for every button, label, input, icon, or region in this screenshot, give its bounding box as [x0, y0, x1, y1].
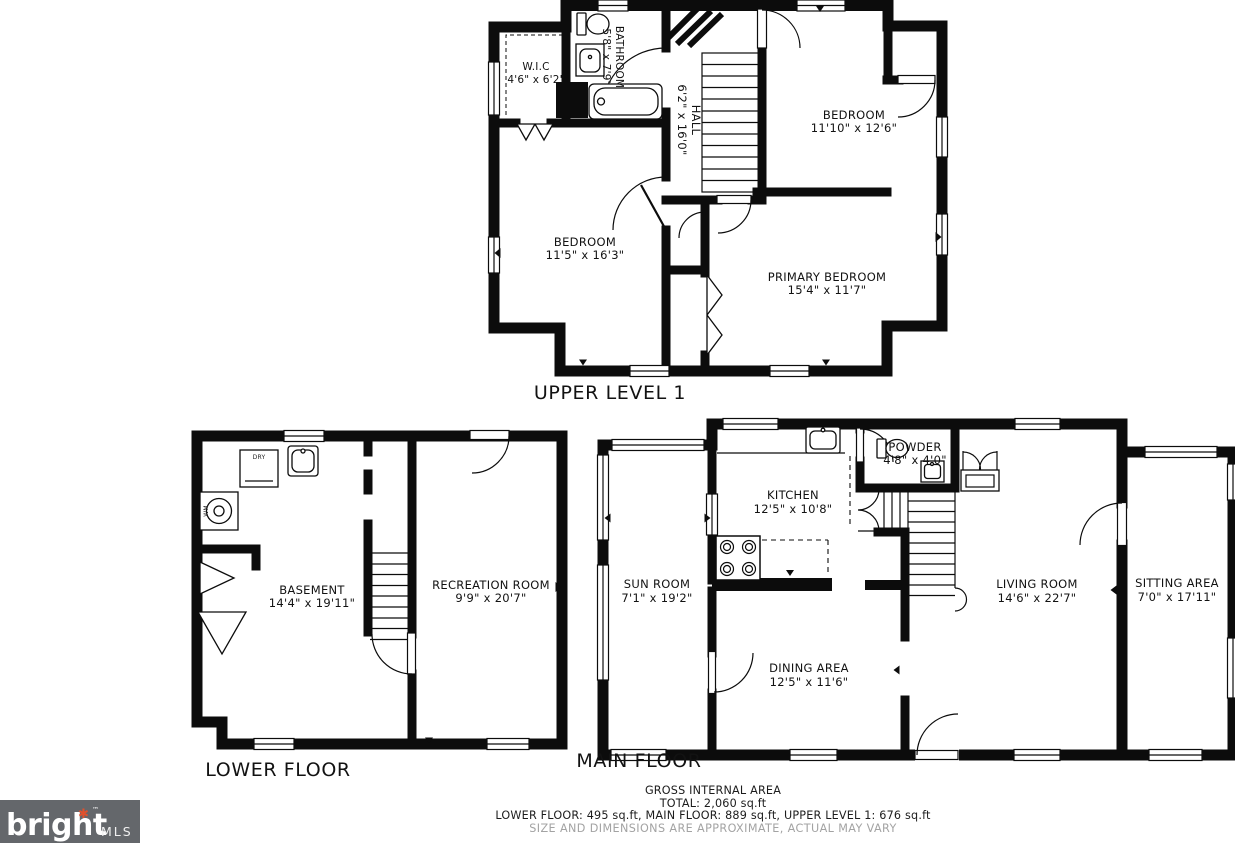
window [612, 440, 704, 451]
sink-icon [806, 427, 840, 453]
room-label-wic-dims: 4'6" x 6'2" [507, 74, 564, 86]
room-label-powder-dims: 4'8" x 4'0" [883, 453, 947, 467]
floor-title-lower: LOWER FLOOR [205, 759, 350, 781]
room-label-bedroom2-name: BEDROOM [554, 235, 616, 249]
floor-title-main: MAIN FLOOR [576, 750, 701, 772]
window [1145, 447, 1217, 458]
gross-internal-area-label: GROSS INTERNAL AREA [645, 784, 781, 797]
logo-tm-mark: ™ [92, 806, 99, 814]
logo-star-icon: ✱ [78, 807, 89, 822]
window [1015, 419, 1060, 430]
room-label-wic-name: W.I.C [522, 61, 549, 73]
dryer-icon: DRY [240, 450, 278, 487]
sink-icon [288, 446, 318, 476]
kitchen-hall-wall [865, 580, 907, 590]
floor-plan-main: KITCHEN 12'5" x 10'8" POWDER 4'8" x 4'0"… [576, 419, 1235, 773]
window [790, 750, 837, 761]
room-label-bathroom-dims: 5'8" x 7'9" [600, 28, 612, 85]
chimney-block [556, 82, 588, 118]
logo-brightmls: bright ✱ ™ MLS [0, 800, 140, 843]
room-label-hall-name: HALL [689, 105, 703, 136]
room-label-basement-name: BASEMENT [279, 583, 345, 597]
room-label-hall-dims: 6'2" x 16'0" [675, 84, 689, 155]
window [254, 739, 294, 750]
per-floor-area-label: LOWER FLOOR: 495 sq.ft, MAIN FLOOR: 889 … [495, 809, 931, 822]
room-label-kitchen-dims: 12'5" x 10'8" [754, 502, 833, 516]
room-label-primary-dims: 15'4" x 11'7" [788, 283, 867, 297]
window [598, 455, 609, 540]
room-label-bedroom1-name: BEDROOM [823, 108, 885, 122]
room-label-powder-name: POWDER [888, 440, 941, 454]
room-label-sitting-name: SITTING AREA [1135, 576, 1219, 590]
stove-icon [716, 536, 760, 580]
bathtub-icon [589, 84, 662, 119]
room-label-living-name: LIVING ROOM [996, 577, 1078, 591]
window [770, 366, 809, 377]
floor-title-upper: UPPER LEVEL 1 [534, 382, 686, 404]
room-label-dining-dims: 12'5" x 11'6" [770, 675, 849, 689]
room-label-bathroom-name: BATHROOM [613, 26, 625, 88]
floor-plan-upper: W.I.C 4'6" x 6'2" BATHROOM 5'8" x 7'9" H… [489, 0, 948, 404]
floorplan-drawing: W.I.C 4'6" x 6'2" BATHROOM 5'8" x 7'9" H… [0, 0, 1235, 844]
window [489, 62, 500, 115]
logo-mls-text: MLS [101, 824, 133, 839]
floor-plan-lower: DRY WM BASEMENT 14'4" x 19'11" RECREATIO… [197, 431, 562, 782]
room-label-sunroom-dims: 7'1" x 19'2" [621, 591, 692, 605]
washer-label: WM [203, 505, 210, 517]
floorplan-page: W.I.C 4'6" x 6'2" BATHROOM 5'8" x 7'9" H… [0, 0, 1235, 844]
room-label-recreation-name: RECREATION ROOM [432, 578, 550, 592]
window [1149, 750, 1202, 761]
area-summary: GROSS INTERNAL AREA TOTAL: 2,060 sq.ft L… [495, 784, 931, 835]
window [1228, 464, 1235, 500]
dryer-label: DRY [253, 454, 266, 461]
room-label-primary-name: PRIMARY BEDROOM [768, 270, 887, 284]
window [284, 431, 324, 442]
room-label-living-dims: 14'6" x 22'7" [998, 591, 1077, 605]
room-label-sunroom-name: SUN ROOM [624, 577, 690, 591]
window [937, 117, 948, 157]
disclaimer-label: SIZE AND DIMENSIONS ARE APPROXIMATE, ACT… [529, 822, 896, 835]
window [598, 565, 609, 680]
window [487, 739, 529, 750]
room-label-recreation-dims: 9'9" x 20'7" [455, 591, 526, 605]
sink-icon [576, 44, 604, 76]
washer-icon: WM [200, 492, 238, 530]
window [707, 494, 718, 535]
room-label-bedroom1-dims: 11'10" x 12'6" [811, 121, 897, 135]
window [1014, 750, 1060, 761]
window [630, 366, 669, 377]
room-label-dining-name: DINING AREA [769, 661, 849, 675]
window [723, 419, 778, 430]
room-label-bedroom2-dims: 11'5" x 16'3" [546, 248, 625, 262]
window [1228, 638, 1235, 698]
room-label-kitchen-name: KITCHEN [767, 488, 819, 502]
room-label-basement-dims: 14'4" x 19'11" [269, 596, 355, 610]
room-label-sitting-dims: 7'0" x 17'11" [1138, 590, 1217, 604]
window [598, 0, 628, 11]
